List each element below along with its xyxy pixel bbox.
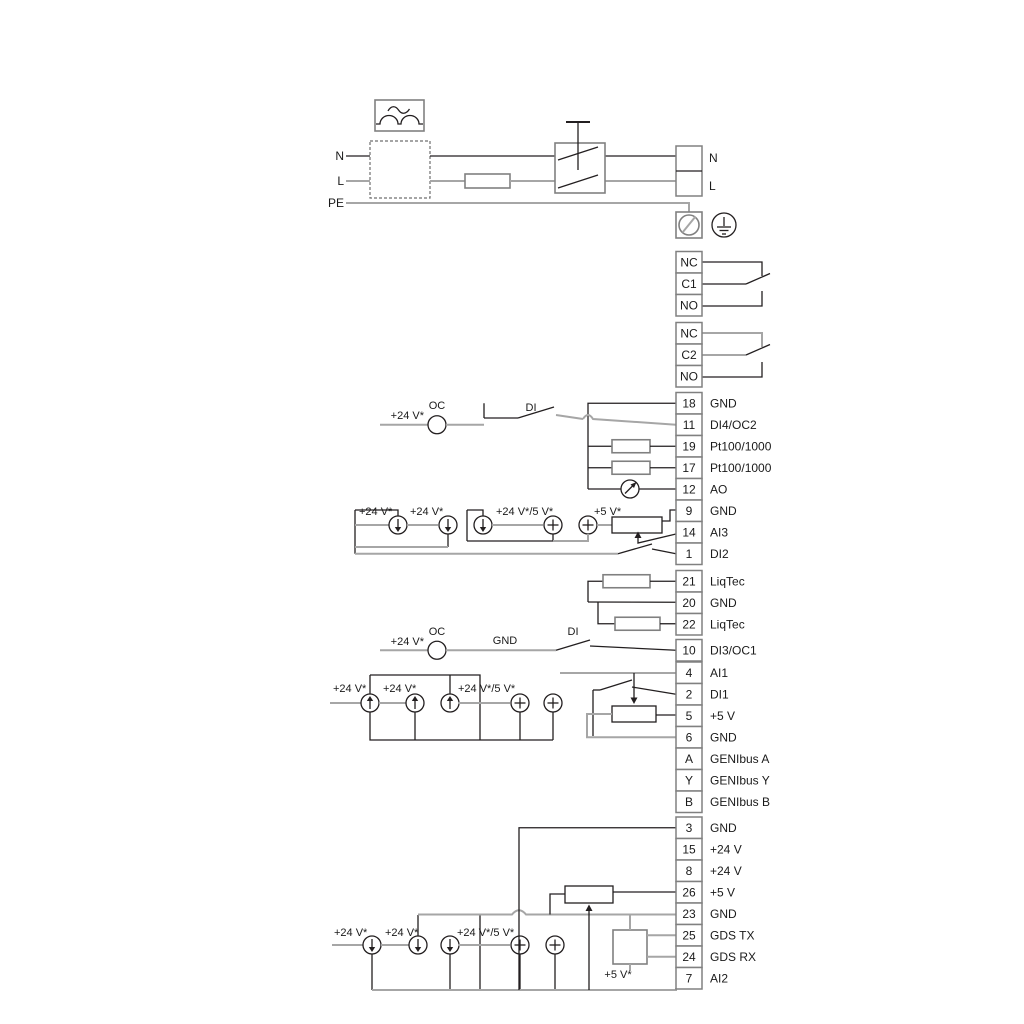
ai2-rail (372, 988, 676, 990)
terminal-number: 4 (686, 666, 693, 680)
annotation-t24b: +24 V* (391, 636, 425, 648)
terminal-number: C2 (681, 348, 697, 362)
terminal-label: LiqTec (710, 574, 745, 588)
relay1-nc-wire (702, 262, 762, 276)
potentiometer (612, 706, 656, 722)
annotation-t24a: +24 V* (391, 410, 425, 422)
pot-wiper-arrow (586, 905, 593, 912)
terminal-number: 25 (682, 928, 696, 942)
power-label-n_right: N (709, 151, 718, 165)
terminal-label: AI3 (710, 525, 728, 539)
terminal-number: 24 (682, 950, 696, 964)
terminal-label: AO (710, 482, 727, 496)
pt100-resistor (612, 440, 650, 453)
terminal-number: C1 (681, 277, 697, 291)
annotation-r3d: +5 V* (604, 969, 632, 981)
terminal-number: A (685, 752, 693, 766)
terminal-number: 20 (682, 596, 696, 610)
terminal-label: GND (710, 396, 737, 410)
relay1-no-wire (702, 291, 762, 306)
terminal-number: B (685, 795, 693, 809)
relay2-contact-blade (746, 345, 770, 356)
power-label-l_left: L (337, 174, 344, 188)
terminal-number: 7 (686, 971, 693, 985)
liqtec-bracket (588, 581, 603, 602)
terminal-number: 1 (686, 547, 693, 561)
terminal-label: GDS RX (710, 950, 756, 964)
diagram-canvas: NCC1NONCC2NO18GND11DI4/OC219Pt100/100017… (0, 0, 1024, 1024)
bracket (370, 712, 553, 740)
relay1-contacts (702, 262, 770, 306)
terminal-number: 10 (682, 643, 696, 657)
liqtec-resistor (603, 575, 650, 588)
di2-switch-blade (618, 544, 652, 554)
terminal-number: NC (680, 326, 698, 340)
wire-hop (583, 415, 676, 425)
pot-gnd-lead (550, 894, 565, 915)
annotation-r3c: +24 V*/5 V* (457, 927, 515, 939)
annotation-r2a: +24 V* (333, 683, 367, 695)
bracket (553, 534, 588, 541)
liqtec-resistor (615, 617, 660, 630)
annotation-r3b: +24 V* (385, 927, 419, 939)
main-switch-box (555, 143, 605, 193)
terminal-label: AI1 (710, 666, 728, 680)
terminal-label: GND (710, 821, 737, 835)
terminal-number: 19 (682, 439, 696, 453)
terminal-label: DI1 (710, 687, 729, 701)
relay1-contact-blade (746, 274, 770, 285)
fuse (465, 174, 510, 188)
pot-wiper-lead (638, 534, 676, 543)
terminal-label: +5 V (710, 709, 735, 723)
terminal-number: 2 (686, 687, 693, 701)
power-label-l_right: L (709, 179, 716, 193)
terminal-number: 18 (682, 396, 696, 410)
potentiometer (565, 886, 613, 903)
annotation-r1c: +24 V*/5 V* (496, 506, 554, 518)
di1-lead2 (632, 687, 676, 694)
annotation-r1b: +24 V* (410, 506, 444, 518)
annotation-r2b: +24 V* (383, 683, 417, 695)
terminal-strips: NCC1NONCC2NO18GND11DI4/OC219Pt100/100017… (676, 252, 772, 990)
terminal-number: Y (685, 773, 693, 787)
gnd23-rail-with-hop (418, 910, 676, 914)
terminal-number: 12 (682, 482, 696, 496)
relay2-no-wire (702, 362, 762, 377)
ac-symbol-box (375, 100, 424, 131)
bracket (467, 510, 483, 516)
terminal-number: NO (680, 369, 698, 383)
filter-box (370, 141, 430, 198)
annotation-r2c: +24 V*/5 V* (458, 683, 516, 695)
terminal-label: GDS TX (710, 928, 754, 942)
terminal-label: DI3/OC1 (710, 643, 757, 657)
bottom-source-row (332, 828, 676, 990)
wire-pe (346, 203, 689, 212)
earth-ground-icon (712, 213, 736, 237)
terminal-number: 3 (686, 821, 693, 835)
terminal-label: GND (710, 730, 737, 744)
di1-switch-blade (600, 680, 632, 690)
terminal-number: 15 (682, 842, 696, 856)
annotation-r1a: +24 V* (359, 506, 393, 518)
terminal-number: 5 (686, 709, 693, 723)
terminal-label: AI2 (710, 971, 728, 985)
terminal-number: 14 (682, 525, 696, 539)
annotation-di2l: DI (568, 626, 579, 638)
relay2-nc-wire (702, 333, 762, 347)
gnd3-wire (519, 828, 676, 990)
annotation-r3a: +24 V* (334, 927, 368, 939)
pot-wiper-arrow (631, 698, 638, 705)
terminal-number: 21 (682, 574, 696, 588)
terminal-number: 26 (682, 885, 696, 899)
power-label-pe_left: PE (328, 196, 344, 210)
terminal-label: DI4/OC2 (710, 418, 757, 432)
terminal-number: 17 (682, 461, 696, 475)
terminal-number: 8 (686, 864, 693, 878)
terminal-label: GENIbus B (710, 795, 770, 809)
open-collector-icon (428, 416, 446, 434)
terminal-number: 6 (686, 730, 693, 744)
power-section (346, 100, 736, 238)
terminal-label: GND (710, 504, 737, 518)
annotations: +24 V*OCDI+24 V*+24 V*+24 V*/5 V*+5 V*+2… (328, 149, 718, 981)
io-top-wiring (380, 403, 676, 498)
liqtec-wiring (588, 575, 676, 631)
wiring-diagram: NCC1NONCC2NO18GND11DI4/OC219Pt100/100017… (0, 0, 1024, 1024)
annotation-r1d: +5 V* (594, 506, 622, 518)
terminal-number: NO (680, 298, 698, 312)
terminal-label: +5 V (710, 885, 735, 899)
liqtec-bracket (598, 602, 615, 624)
di2-lead2 (652, 549, 676, 554)
annotation-oc1: OC (429, 400, 446, 412)
analog-output-meter-icon (621, 480, 639, 498)
gds-module (613, 930, 647, 964)
terminal-label: GENIbus Y (710, 773, 770, 787)
terminal-number: 23 (682, 907, 696, 921)
terminal-label: +24 V (710, 864, 742, 878)
terminal-label: Pt100/1000 (710, 439, 772, 453)
annotation-gnd1: GND (493, 635, 518, 647)
pt100-resistor (612, 461, 650, 474)
terminal-label: GND (710, 907, 737, 921)
open-collector-icon (428, 641, 446, 659)
di3-row (380, 640, 676, 659)
terminal-label: GND (710, 596, 737, 610)
di4-lead2 (556, 415, 583, 419)
terminal-label: LiqTec (710, 617, 745, 631)
terminal-label: DI2 (710, 547, 729, 561)
potentiometer (612, 517, 662, 533)
relay2-contacts (702, 333, 770, 377)
annotation-di1: DI (526, 402, 537, 414)
pot-lead (662, 510, 676, 521)
terminal-label: +24 V (710, 842, 742, 856)
terminal-number: NC (680, 255, 698, 269)
di3-lead (590, 646, 676, 650)
terminal-number: 11 (683, 418, 696, 432)
terminal-number: 22 (682, 617, 696, 631)
terminal-number: 9 (686, 504, 693, 518)
terminal-label: Pt100/1000 (710, 461, 772, 475)
terminal-label: GENIbus A (710, 752, 769, 766)
di3-switch-blade (556, 640, 590, 650)
annotation-oc2: OC (429, 626, 446, 638)
power-label-n_left: N (335, 149, 344, 163)
